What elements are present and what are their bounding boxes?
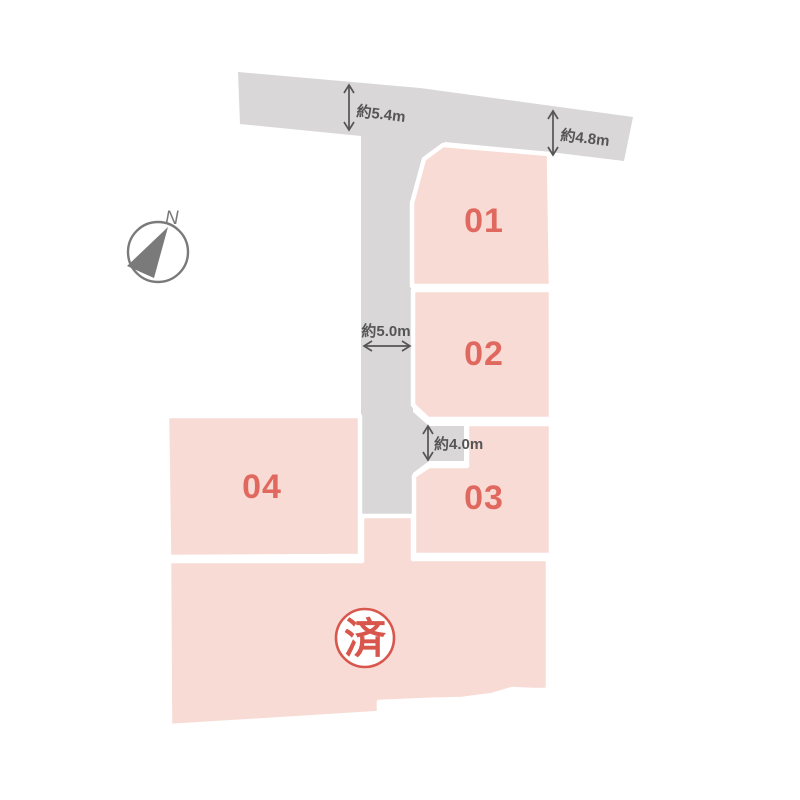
- dimension-road-vertical-label: 約5.0m: [361, 322, 410, 340]
- compass-north-label: N: [165, 208, 179, 229]
- sold-badge-label: 済: [344, 615, 387, 662]
- lot-02-label: 02: [464, 335, 504, 373]
- site-plan-svg: 01 02 03 04 済 約5.4m 約4.8m 約5.0m 約4.0m N: [0, 0, 800, 800]
- dimension-access-width-label: 約4.0m: [434, 435, 483, 453]
- lot-04-label: 04: [242, 468, 282, 506]
- lot-01-label: 01: [464, 202, 504, 240]
- compass: N: [127, 208, 188, 282]
- lot-03-label: 03: [464, 479, 504, 517]
- site-plan: 01 02 03 04 済 約5.4m 約4.8m 約5.0m 約4.0m N: [0, 0, 800, 800]
